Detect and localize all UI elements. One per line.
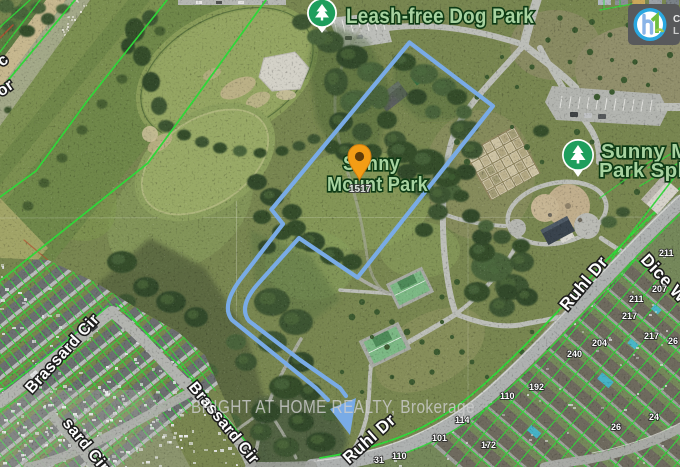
svg-text:192: 192 — [529, 382, 544, 392]
svg-text:211: 211 — [659, 248, 674, 258]
svg-text:101: 101 — [432, 433, 447, 443]
svg-text:217: 217 — [644, 331, 659, 341]
svg-text:L: L — [673, 26, 679, 37]
svg-text:BRIGHT AT HOME REALTY, Brokera: BRIGHT AT HOME REALTY, Brokerage — [191, 396, 475, 417]
svg-text:Leash-free Dog Park: Leash-free Dog Park — [346, 5, 534, 28]
svg-text:C: C — [673, 14, 680, 25]
svg-text:110: 110 — [392, 451, 407, 461]
svg-text:172: 172 — [481, 440, 496, 450]
svg-text:Park Spla: Park Spla — [599, 159, 680, 182]
svg-text:240: 240 — [567, 349, 582, 359]
svg-text:31: 31 — [374, 455, 384, 465]
svg-text:110: 110 — [500, 391, 515, 401]
svg-text:204: 204 — [592, 338, 607, 348]
svg-text:207: 207 — [652, 284, 667, 294]
svg-text:Mount Park: Mount Park — [327, 173, 428, 196]
svg-text:211: 211 — [629, 294, 644, 304]
svg-text:26: 26 — [668, 336, 678, 346]
svg-text:26: 26 — [611, 422, 621, 432]
svg-text:217: 217 — [622, 311, 637, 321]
svg-text:24: 24 — [649, 412, 659, 422]
svg-text:1517: 1517 — [349, 184, 372, 195]
